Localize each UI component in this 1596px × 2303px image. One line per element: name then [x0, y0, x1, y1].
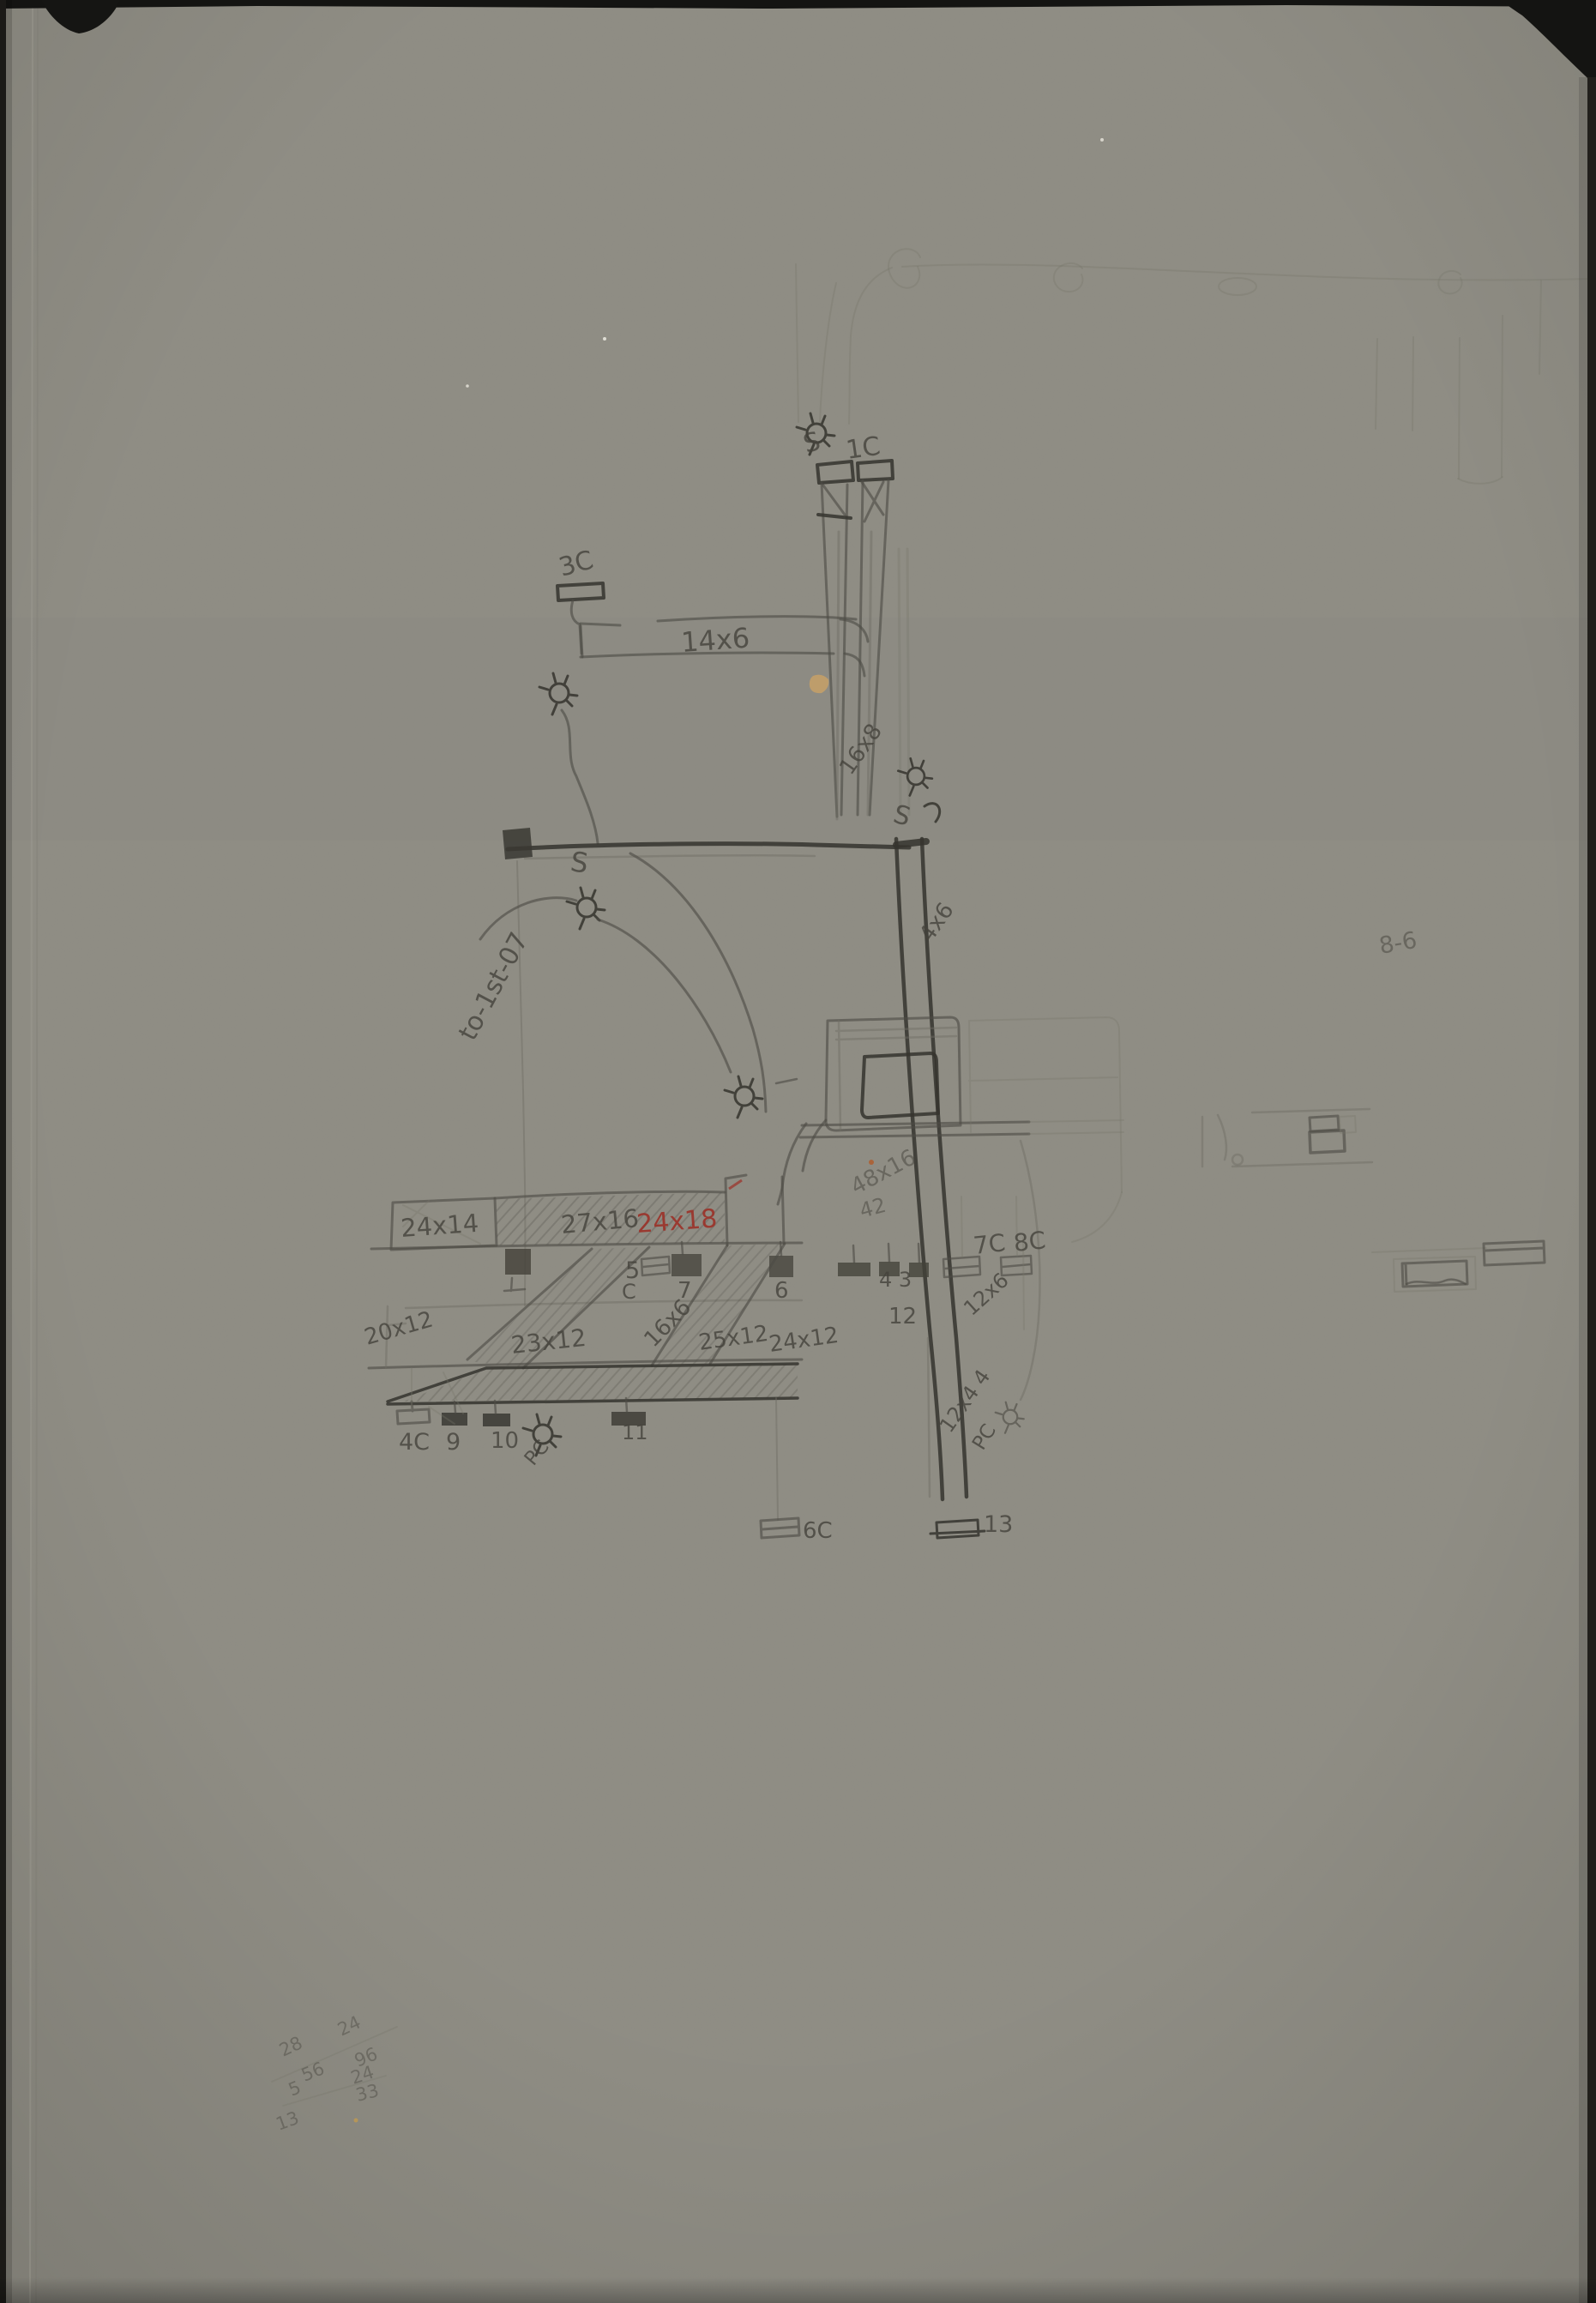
label-8c: 8C — [1012, 1226, 1047, 1257]
hanger-block — [838, 1263, 870, 1276]
label-11: 11 — [622, 1420, 648, 1444]
white-speck — [603, 337, 606, 341]
label-7c: 7C — [972, 1228, 1007, 1260]
label-4c: 4C — [399, 1429, 430, 1456]
white-speck — [1100, 138, 1104, 142]
label-4-3: 4 3 — [879, 1268, 912, 1292]
label-9: 9 — [446, 1429, 461, 1456]
label-c: C — [622, 1280, 636, 1304]
mount-bottom-shadow — [0, 2277, 1596, 2303]
label-24x18-red: 24x18 — [635, 1204, 718, 1239]
yellow-speck — [354, 2119, 358, 2123]
label-24x14: 24x14 — [400, 1209, 479, 1243]
label-6c: 6C — [803, 1518, 833, 1544]
hanger-block-10 — [483, 1414, 510, 1426]
label-14x6: 14x6 — [680, 621, 750, 658]
hanger-block — [909, 1263, 929, 1277]
mount-left-strip — [0, 0, 6, 2303]
header-end-block — [503, 828, 533, 859]
white-speck — [466, 384, 469, 388]
hanger-stem — [682, 1242, 683, 1254]
hanger-block — [672, 1254, 702, 1276]
sketch-page: S 1C 3C 14x6 16x8 S S 4x6 to-1st-07 8-6 … — [0, 0, 1596, 2303]
mount-left-shadow — [6, 0, 12, 2303]
mount-right-shadow — [1579, 77, 1587, 2303]
label-13: 13 — [984, 1511, 1013, 1538]
label-12: 12 — [888, 1304, 917, 1329]
label-10: 10 — [491, 1428, 519, 1454]
hanger-stem — [626, 1398, 627, 1412]
label-1c: 1C — [844, 431, 882, 466]
label-6: 6 — [774, 1278, 789, 1304]
mount-right-strip — [1587, 77, 1596, 2303]
hanger-block — [505, 1249, 531, 1275]
